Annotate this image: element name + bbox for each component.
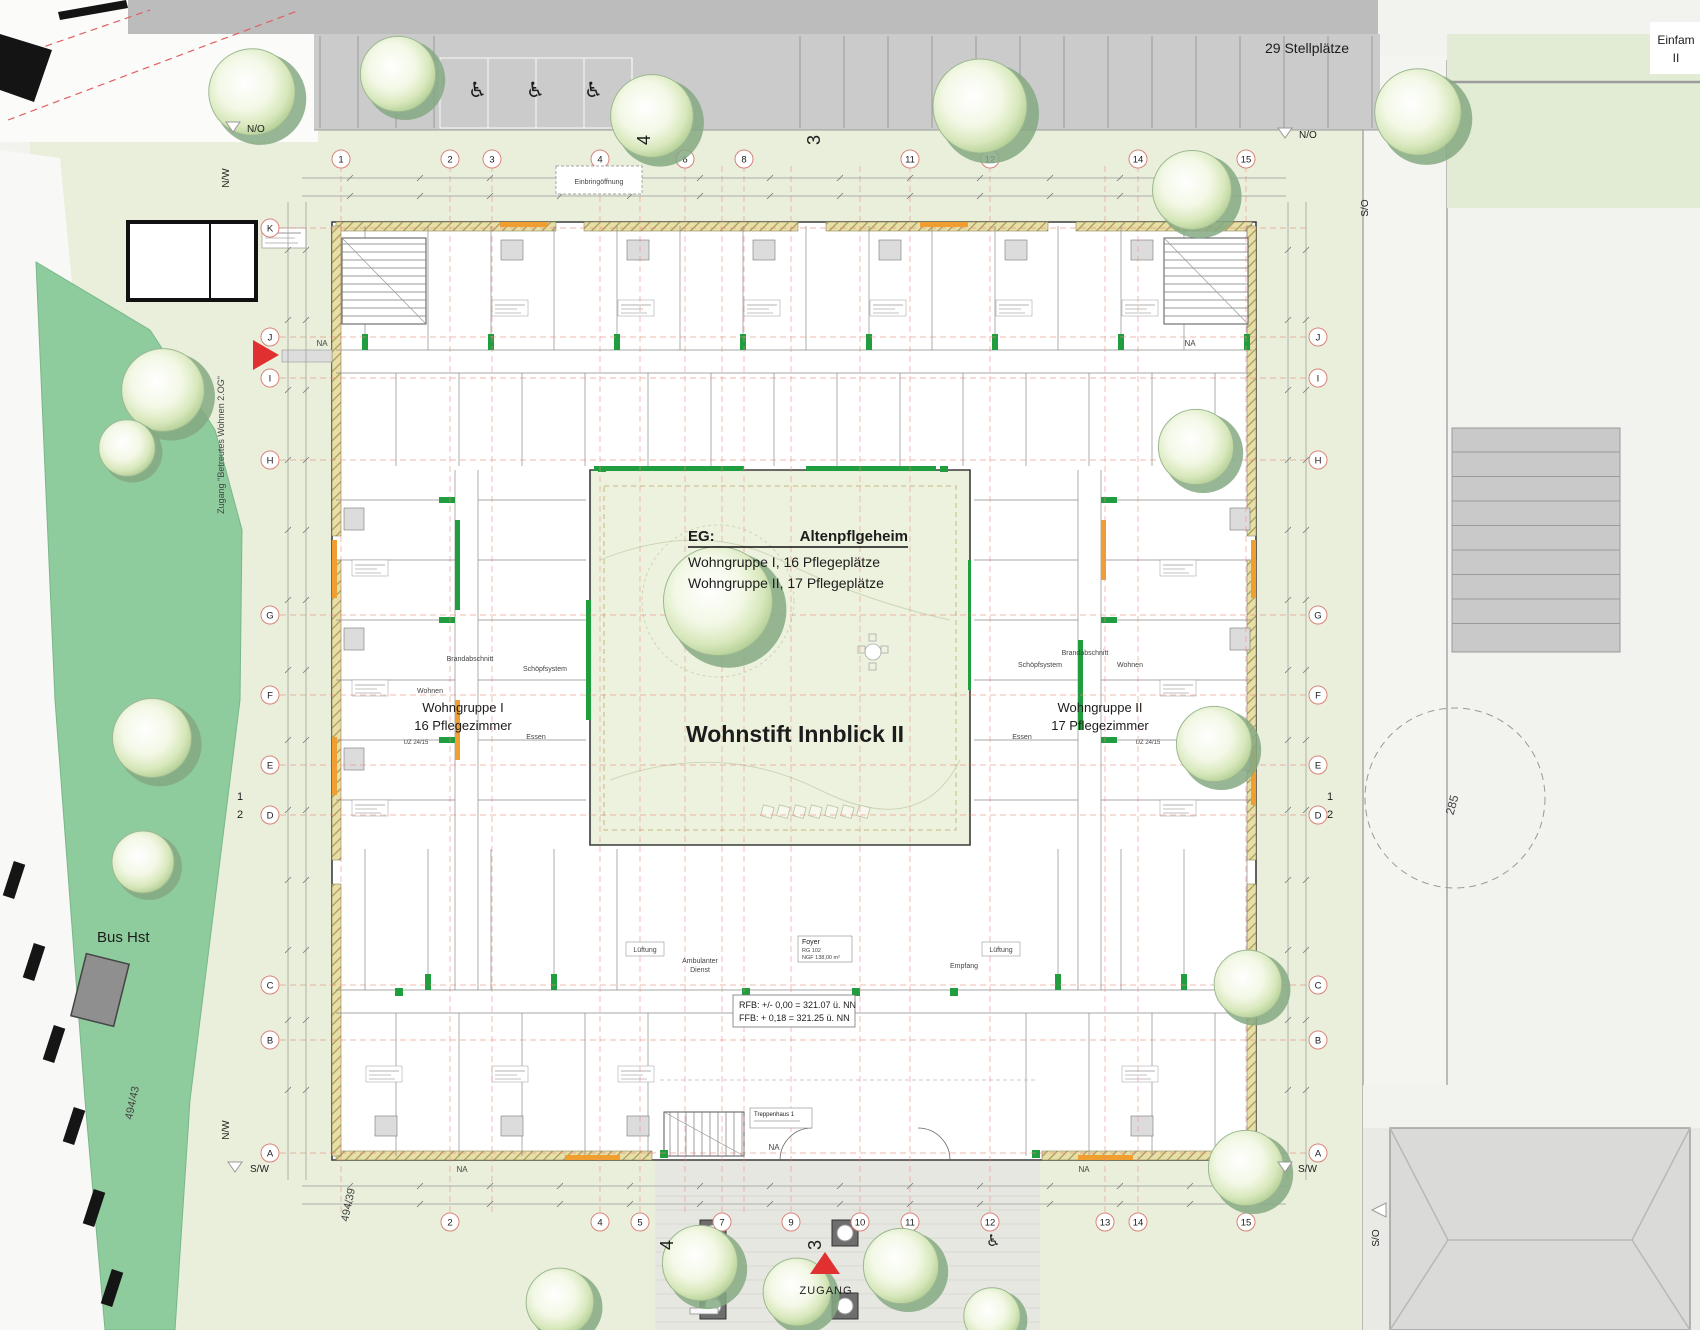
- room-label-wohnen: Wohnen: [1117, 662, 1143, 669]
- svg-text:14: 14: [1133, 154, 1144, 165]
- wheelchair-icon: ♿: [986, 1231, 1000, 1250]
- wing-right-label1: Wohngruppe II: [1057, 700, 1142, 715]
- room-label-brandabschnitt: Brandabschnitt: [1062, 650, 1109, 657]
- svg-text:C: C: [267, 980, 274, 991]
- svg-text:J: J: [1316, 332, 1321, 343]
- room-label-empfang: Empfang: [950, 963, 978, 970]
- section-mark: 2: [1327, 809, 1333, 821]
- svg-text:3: 3: [489, 154, 494, 165]
- room-label-uz: UZ 24/15: [404, 740, 429, 746]
- svg-text:F: F: [267, 690, 273, 701]
- svg-text:15: 15: [1241, 154, 1252, 165]
- compass-sw: S/W: [250, 1164, 269, 1175]
- neighbor-label: II: [1673, 51, 1680, 65]
- section-mark: 3: [804, 135, 824, 145]
- svg-text:A: A: [1315, 1148, 1322, 1159]
- room-label-ambulanter: Ambulanter: [682, 958, 718, 965]
- room-label-na: NA: [768, 1143, 780, 1152]
- svg-text:1: 1: [338, 154, 343, 165]
- svg-text:11: 11: [905, 154, 915, 165]
- east-parking: [1452, 428, 1620, 652]
- room-label-foyer-ngf: NGF 138,00 m²: [802, 955, 840, 961]
- svg-text:I: I: [269, 373, 272, 384]
- level-ffb: FFB: + 0,18 = 321.25 ü. NN: [739, 1013, 850, 1023]
- courtyard: [592, 472, 968, 843]
- north-parking: ♿ ♿ ♿: [314, 34, 1380, 130]
- room-label-na: NA: [1184, 339, 1196, 348]
- svg-text:11: 11: [905, 1217, 915, 1228]
- svg-text:B: B: [267, 1035, 273, 1046]
- wing-right-label2: 17 Pflegezimmer: [1051, 718, 1149, 733]
- svg-text:10: 10: [855, 1217, 866, 1228]
- room-label-essen: Essen: [1012, 734, 1032, 741]
- section-mark: 4: [657, 1240, 677, 1250]
- svg-text:8: 8: [741, 154, 746, 165]
- section-mark: 2: [237, 809, 243, 821]
- wheelchair-icon: ♿: [468, 78, 487, 102]
- svg-text:5: 5: [637, 1217, 642, 1228]
- svg-text:J: J: [268, 332, 273, 343]
- room-label-treppenhaus: Treppenhaus 1: [754, 1112, 795, 1118]
- wing-left-label2: 16 Pflegezimmer: [414, 718, 512, 733]
- room-label-na: NA: [456, 1165, 468, 1174]
- room-label-essen: Essen: [526, 734, 546, 741]
- svg-text:H: H: [1315, 455, 1322, 466]
- room-label-foyer: Foyer: [802, 939, 821, 946]
- compass-sw: S/W: [1298, 1164, 1317, 1175]
- center-line1: Wohngruppe I, 16 Pflegeplätze: [688, 554, 880, 570]
- svg-text:C: C: [1315, 980, 1322, 991]
- center-eg-label: EG:: [688, 528, 715, 545]
- side-entrance-label: Zugang "Betreutes Wohnen 2.OG": [216, 376, 226, 514]
- room-label-schoepfsystem: Schöpfsystem: [1018, 662, 1062, 669]
- svg-text:2: 2: [447, 154, 452, 165]
- center-line2: Wohngruppe II, 17 Pflegeplätze: [688, 575, 884, 591]
- side-entrance-bridge: [282, 350, 332, 362]
- neighbor-label: Einfam: [1657, 33, 1694, 47]
- section-mark: 3: [805, 1240, 825, 1250]
- neighbor-label-box: [1650, 22, 1700, 74]
- compass-no: N/O: [1299, 130, 1317, 141]
- svg-text:2: 2: [447, 1217, 452, 1228]
- section-mark: 1: [237, 791, 243, 803]
- svg-text:H: H: [267, 455, 274, 466]
- svg-text:D: D: [267, 810, 274, 821]
- svg-text:F: F: [1315, 690, 1321, 701]
- room-label-na: NA: [316, 339, 328, 348]
- svg-text:G: G: [266, 610, 273, 621]
- svg-text:14: 14: [1133, 1217, 1144, 1228]
- parking-count-label: 29 Stellplätze: [1265, 40, 1349, 56]
- section-mark: 4: [634, 135, 654, 145]
- svg-text:12: 12: [985, 1217, 996, 1228]
- compass-so: S/O: [1360, 199, 1371, 216]
- room-label-dienst: Dienst: [690, 967, 710, 974]
- compass-nw: N/W: [221, 1120, 232, 1140]
- room-label-foyer-rg: RG 102: [802, 948, 821, 954]
- room-label-einbring: Einbringöffnung: [575, 179, 624, 186]
- compass-nw: N/W: [221, 168, 232, 188]
- svg-text:B: B: [1315, 1035, 1321, 1046]
- neighbor-building-roof: [1390, 1128, 1690, 1330]
- site-plan: ♿ ♿ ♿ ♿ 12346811121415: [0, 0, 1700, 1330]
- svg-text:4: 4: [597, 1217, 602, 1228]
- svg-text:I: I: [1317, 373, 1320, 384]
- svg-text:4: 4: [597, 154, 602, 165]
- room-label-lueftung: Lüftung: [989, 947, 1012, 954]
- svg-text:G: G: [1314, 610, 1321, 621]
- level-rfb: RFB: +/- 0,00 = 321.07 ü. NN: [739, 1000, 856, 1010]
- svg-text:K: K: [267, 223, 274, 234]
- north-road: [128, 0, 1378, 34]
- center-eg-value: Altenpflgeheim: [800, 528, 908, 545]
- room-label-schoepfsystem: Schöpfsystem: [523, 666, 567, 673]
- svg-text:13: 13: [1100, 1217, 1111, 1228]
- room-label-wohnen: Wohnen: [417, 688, 443, 695]
- wheelchair-icon: ♿: [584, 78, 603, 102]
- svg-text:15: 15: [1241, 1217, 1252, 1228]
- site-plan-canvas: ♿ ♿ ♿ ♿ 12346811121415: [0, 0, 1700, 1330]
- wing-left-label1: Wohngruppe I: [422, 700, 503, 715]
- room-label-lueftung: Lüftung: [633, 947, 656, 954]
- project-title: Wohnstift Innblick II: [686, 721, 904, 747]
- entrance-label: ZUGANG: [799, 1285, 852, 1297]
- bus-stop-label: Bus Hst: [97, 929, 150, 946]
- svg-text:9: 9: [788, 1217, 793, 1228]
- wheelchair-icon: ♿: [526, 78, 545, 102]
- svg-text:E: E: [1315, 760, 1321, 771]
- compass-no: N/O: [247, 124, 265, 135]
- section-mark: 1: [1327, 791, 1333, 803]
- svg-text:A: A: [267, 1148, 274, 1159]
- svg-text:E: E: [267, 760, 273, 771]
- room-label-na: NA: [1078, 1165, 1090, 1174]
- svg-text:D: D: [1315, 810, 1322, 821]
- compass-so: S/O: [1371, 1229, 1382, 1246]
- svg-text:7: 7: [719, 1217, 724, 1228]
- room-label-uz: UZ 24/15: [1136, 740, 1161, 746]
- room-label-brandabschnitt: Brandabschnitt: [447, 656, 494, 663]
